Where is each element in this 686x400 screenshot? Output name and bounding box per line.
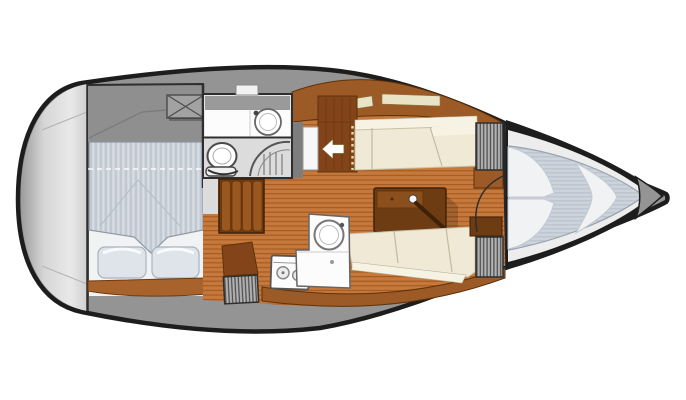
head-deck-strip	[205, 96, 290, 110]
toilet-icon	[208, 143, 237, 169]
starboard-settee	[355, 116, 477, 170]
aft-wood-step	[88, 278, 208, 296]
sink-drain-dot	[330, 260, 334, 264]
head-compartment	[203, 94, 292, 178]
hanging-locker-port	[476, 237, 503, 277]
companionway-bulkhead	[318, 96, 357, 172]
boat-floor-plan-page	[0, 0, 686, 400]
washbasin-icon	[255, 109, 281, 135]
galley-corner-cabinet	[222, 242, 258, 276]
basin-faucet-dot	[254, 111, 259, 116]
hatch-shadow	[169, 118, 206, 121]
hanging-locker-aft	[223, 275, 258, 304]
head-floor-sliver	[203, 178, 218, 214]
companionway-panel	[303, 127, 318, 170]
deck-hatch-icon	[167, 95, 206, 121]
forward-cabin	[506, 120, 664, 270]
window-slot-2	[382, 94, 440, 106]
sink-faucet-dot	[340, 223, 344, 227]
hanging-locker-starboard	[476, 123, 503, 170]
port-corner-locker	[470, 217, 502, 236]
deck-hatch-small	[236, 85, 258, 95]
galley-sink-icon	[315, 221, 344, 250]
head-side-wall	[292, 122, 303, 178]
boat-floor-plan	[0, 0, 686, 400]
stern-deck	[21, 84, 88, 311]
stern-deck-surface	[21, 84, 87, 311]
table-knob-dot	[391, 198, 394, 201]
